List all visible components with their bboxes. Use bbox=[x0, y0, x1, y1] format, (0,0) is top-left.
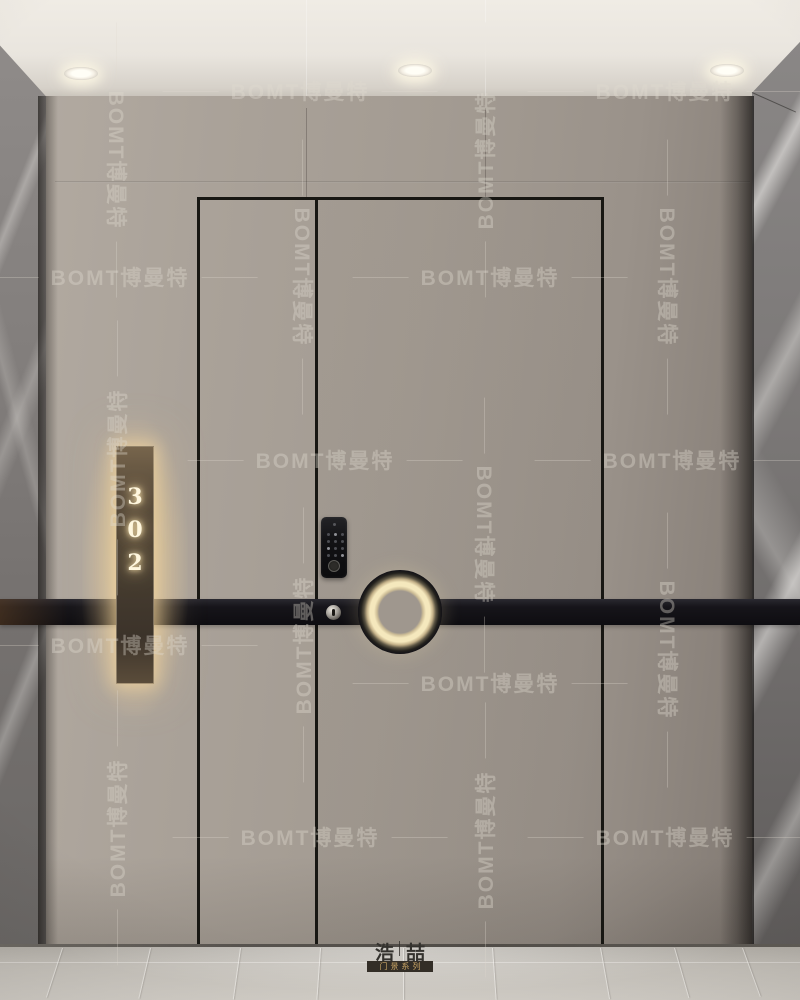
downlight-icon bbox=[398, 64, 432, 77]
keypad-key-dot bbox=[327, 554, 330, 557]
keypad-key-dot bbox=[341, 533, 344, 536]
door-frame-left-line bbox=[197, 197, 200, 946]
ceiling bbox=[0, 0, 800, 100]
ceiling-seam bbox=[306, 0, 307, 96]
door-frame-top-line bbox=[197, 197, 604, 200]
keypad-key-dot bbox=[341, 540, 344, 543]
door-number-text: 302 bbox=[116, 458, 154, 608]
keyhole-slot bbox=[332, 609, 335, 616]
keypad-key-dot bbox=[341, 554, 344, 557]
keypad-key-dot bbox=[334, 554, 337, 557]
logo-series-badge: 门景系列 bbox=[367, 961, 433, 972]
backlit-ring-door-handle bbox=[358, 570, 442, 654]
wall-panel-seam-vertical bbox=[485, 108, 486, 200]
band-warm-reflection bbox=[0, 599, 70, 625]
marble-side-wall-right bbox=[752, 40, 800, 950]
corner-shadow-left bbox=[38, 96, 58, 948]
logo-divider bbox=[399, 941, 400, 956]
keypad-key-dot bbox=[334, 547, 337, 550]
keypad-key-dot bbox=[341, 547, 344, 550]
wall-panel-seam-vertical bbox=[306, 108, 307, 200]
wall-panel-seam-horizontal bbox=[55, 181, 750, 183]
keypad-camera-dot bbox=[333, 523, 336, 526]
keypad-key-dot bbox=[334, 533, 337, 536]
fingerprint-reader-icon bbox=[328, 560, 340, 572]
keypad-key-dot bbox=[334, 540, 337, 543]
entry-door-scene: 302 浩喆 门景系列 BOMT博曼特BOMT博曼特BOMT博曼特BOMT博曼特… bbox=[0, 0, 800, 1000]
downlight-icon bbox=[710, 64, 744, 77]
keypad-key-dot bbox=[327, 540, 330, 543]
keypad-key-dot bbox=[327, 533, 330, 536]
door-frame-right-line bbox=[601, 200, 604, 946]
corner-shadow-right bbox=[720, 96, 754, 948]
door-leaf-edge-line bbox=[315, 200, 318, 946]
ceiling-seam bbox=[485, 0, 486, 96]
door-leaf bbox=[318, 200, 601, 946]
logo-series-label: 门景系列 bbox=[377, 961, 424, 972]
keypad-key-dot bbox=[327, 547, 330, 550]
downlight-icon bbox=[64, 67, 98, 80]
